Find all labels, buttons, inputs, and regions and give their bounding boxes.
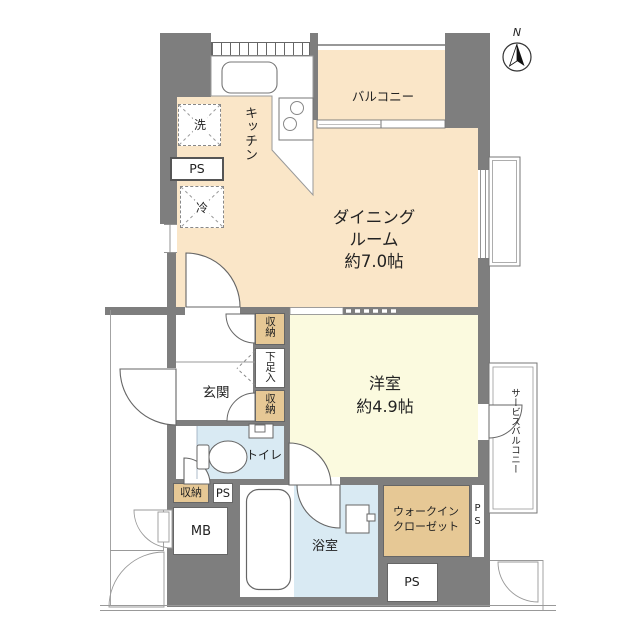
corridor-lines: [100, 310, 556, 611]
bath-counter: [346, 505, 369, 533]
bathtub: [247, 490, 291, 590]
dining-label-line1: ダイニング: [333, 207, 416, 229]
bedroom-door-swing: [289, 443, 331, 485]
window-left-frame: [164, 224, 177, 253]
neighbor-door-swing-2: [109, 552, 164, 607]
storage-lower-door-swing: [227, 393, 255, 421]
washbasin-faucet: [255, 425, 265, 432]
storage-lower-label: 収納: [263, 393, 278, 414]
western-room-label-line1: 洋室: [356, 372, 413, 395]
bay-window-outer: [489, 157, 520, 266]
toilet-tank: [197, 445, 209, 469]
bath-door-swing: [297, 485, 340, 528]
dining-label-line3: 約7.0帖: [333, 251, 416, 273]
bathroom-label: 浴室: [312, 538, 338, 556]
balcony-label: バルコニー: [352, 89, 414, 106]
storage-upper-door-swing: [226, 314, 255, 343]
compass-icon: [503, 43, 531, 71]
dining-label-line2: ルーム: [333, 229, 416, 251]
fridge-label: 冷: [195, 200, 209, 216]
sliding-door-dining-bedroom: [290, 308, 343, 315]
wic-label: ウォークイン クローゼット: [393, 504, 459, 534]
ps-box-label: PS: [404, 574, 419, 591]
dining-label: ダイニング ルーム 約7.0帖: [333, 207, 416, 273]
stove-burner-1: [291, 102, 304, 115]
shoe-cabinet-label: 下足入: [263, 351, 278, 383]
wic-label-line1: ウォークイン: [393, 504, 459, 519]
dining-door-swing: [186, 253, 240, 307]
compass-n-label: N: [513, 26, 521, 41]
entrance-door-swing: [120, 369, 176, 425]
western-room-label-line2: 約4.9帖: [356, 395, 413, 418]
genkan-label: 玄関: [203, 384, 230, 402]
shoe-cabinet-door-dashed: [237, 351, 255, 385]
toilet-label: トイレ: [246, 447, 282, 463]
floor-plan: バルコニー N キッチン 洗 PS 冷 ダイニング ルーム 約7.0帖 収納 下…: [0, 0, 640, 640]
neighbor-door-swing-3: [498, 562, 538, 602]
ps-small-label: PS: [216, 486, 230, 502]
western-room-label: 洋室 約4.9帖: [356, 372, 413, 418]
ps-top-label: PS: [189, 161, 204, 178]
service-balcony-label: サービスバルコニー: [507, 388, 521, 474]
wic-label-line2: クローゼット: [393, 519, 459, 534]
washer-label: 洗: [193, 117, 207, 133]
ps-strip-label: PS: [472, 503, 483, 529]
bath-faucet: [367, 514, 375, 521]
toilet-bowl: [209, 441, 247, 473]
storage-upper-label: 収納: [263, 316, 278, 337]
stove-burner-2: [284, 118, 297, 131]
kitchen-label: キッチン: [240, 106, 259, 162]
exterior-meter-box: [158, 512, 169, 542]
mb-label: MB: [191, 523, 211, 541]
kitchen-sink: [222, 62, 277, 93]
storage-bottom-label: 収納: [180, 486, 202, 501]
window-right-frame: [481, 170, 486, 258]
